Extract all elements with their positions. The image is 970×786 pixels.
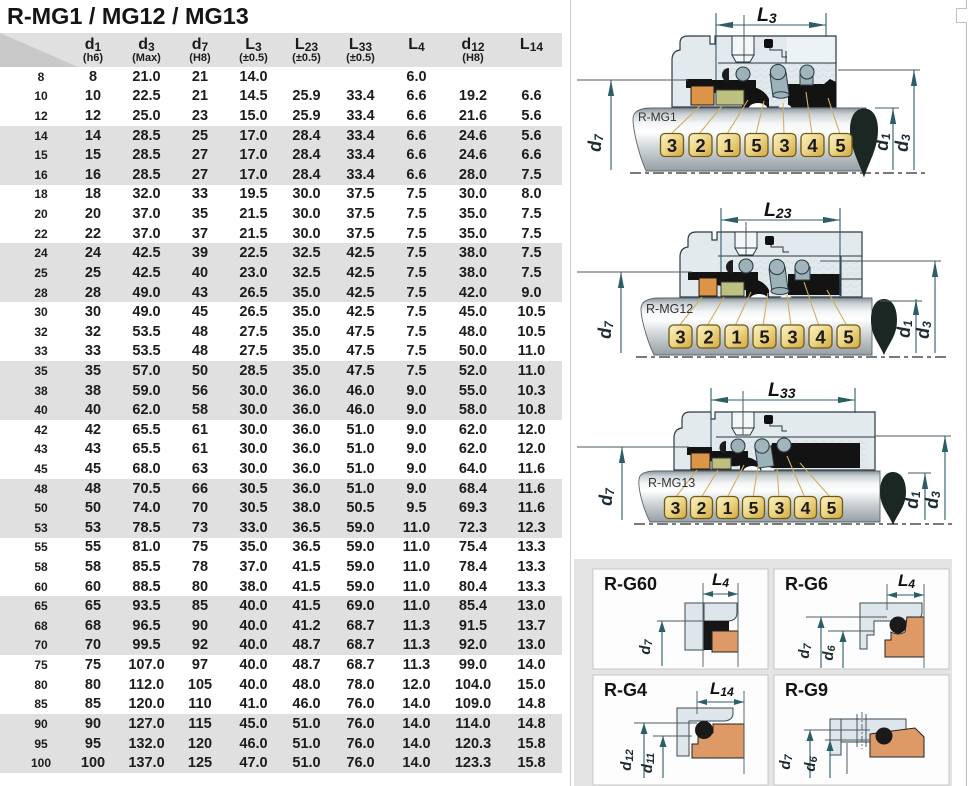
svg-text:R-MG12: R-MG12 — [646, 302, 693, 316]
svg-text:3: 3 — [775, 498, 785, 518]
svg-text:2: 2 — [703, 327, 713, 348]
svg-text:1: 1 — [731, 327, 741, 348]
svg-text:5: 5 — [843, 327, 853, 348]
svg-text:d7: d7 — [585, 133, 606, 152]
svg-text:R-G4: R-G4 — [604, 680, 647, 700]
svg-text:d3: d3 — [892, 134, 913, 152]
svg-text:4: 4 — [815, 327, 826, 348]
svg-text:4: 4 — [807, 135, 818, 156]
svg-text:d7: d7 — [596, 487, 617, 506]
svg-text:R-G9: R-G9 — [785, 680, 828, 700]
svg-text:5: 5 — [759, 327, 769, 348]
svg-text:L3: L3 — [757, 4, 777, 26]
svg-text:3: 3 — [675, 327, 685, 348]
svg-text:R-MG1: R-MG1 — [638, 110, 677, 124]
svg-text:3: 3 — [667, 135, 677, 156]
svg-text:1: 1 — [723, 498, 733, 518]
svg-text:3: 3 — [779, 135, 789, 156]
svg-text:1: 1 — [723, 135, 733, 156]
svg-text:4: 4 — [801, 498, 811, 518]
svg-text:d7: d7 — [595, 320, 616, 339]
svg-text:5: 5 — [751, 135, 761, 156]
svg-text:L33: L33 — [768, 379, 796, 401]
svg-text:5: 5 — [835, 135, 845, 156]
svg-text:5: 5 — [827, 498, 837, 518]
svg-text:2: 2 — [695, 135, 705, 156]
svg-text:3: 3 — [671, 498, 681, 518]
svg-text:L23: L23 — [764, 199, 792, 221]
svg-text:2: 2 — [697, 498, 707, 518]
svg-text:R-MG13: R-MG13 — [648, 476, 695, 490]
svg-text:5: 5 — [749, 498, 759, 518]
svg-text:d1: d1 — [894, 320, 915, 338]
svg-text:3: 3 — [787, 327, 797, 348]
svg-text:R-G6: R-G6 — [785, 574, 828, 594]
svg-text:R-G60: R-G60 — [604, 574, 657, 594]
